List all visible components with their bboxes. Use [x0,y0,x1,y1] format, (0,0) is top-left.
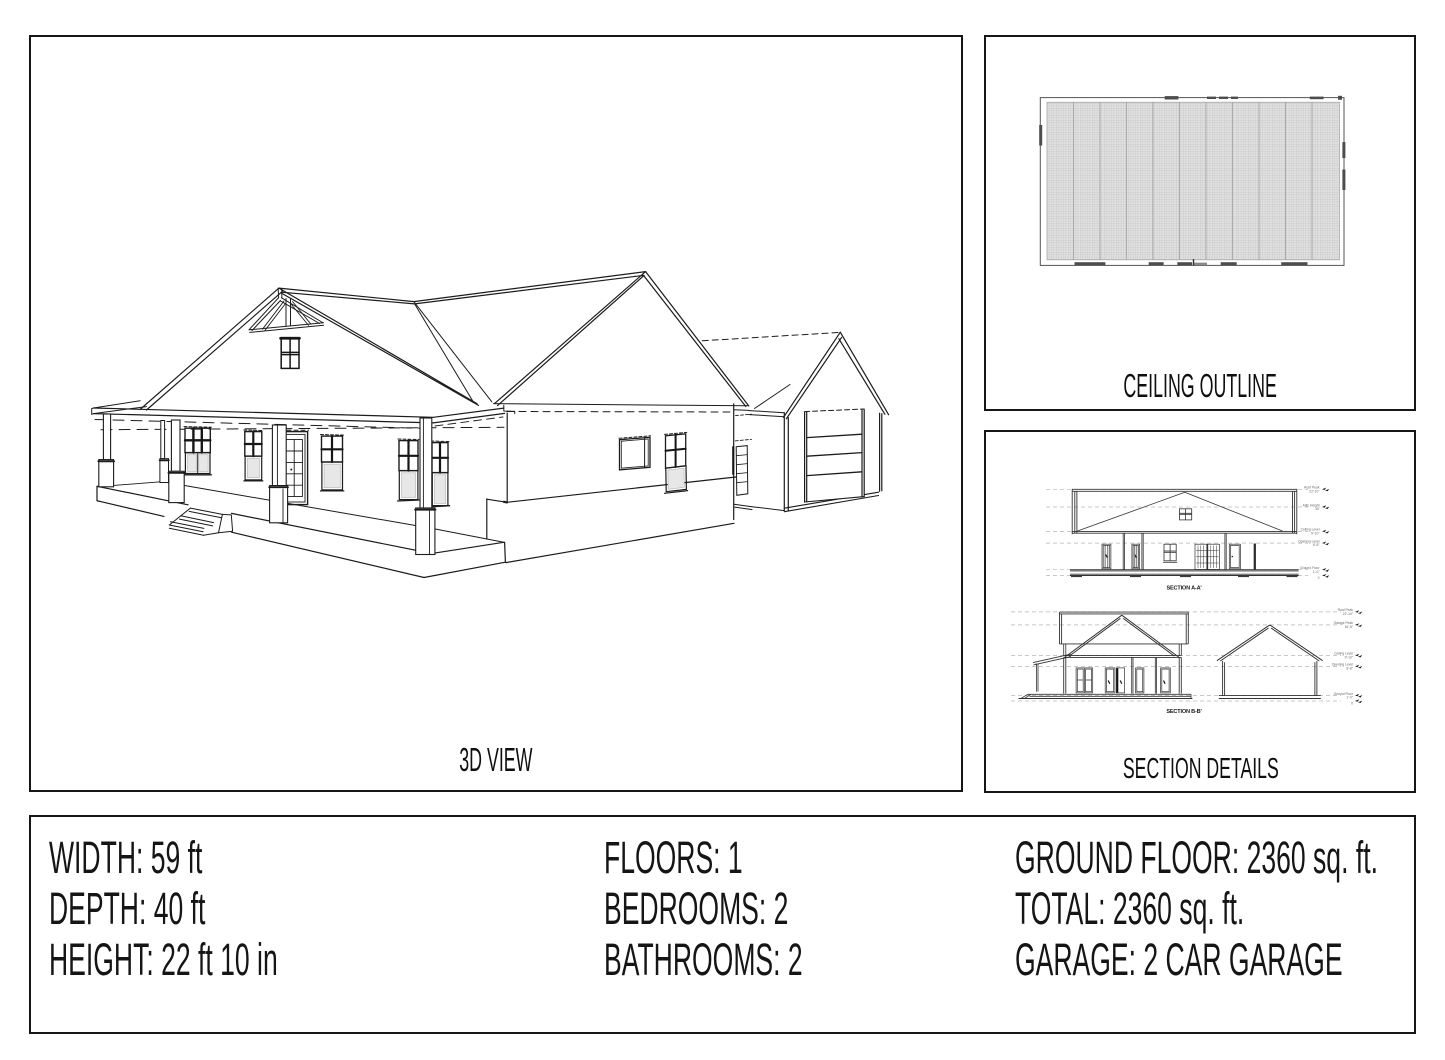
svg-text:16': 16' [1315,507,1320,511]
svg-text:SECTION B-B': SECTION B-B' [1166,709,1202,715]
svg-text:0: 0 [1351,702,1353,706]
svg-text:6'-8": 6'-8" [1313,543,1320,547]
svg-text:9'-10": 9'-10" [1345,656,1354,660]
svg-text:22'-10": 22'-10" [1343,612,1354,616]
svg-text:16'-8": 16'-8" [1345,625,1354,629]
svg-text:6'-8": 6'-8" [1346,667,1353,671]
svg-text:SECTION A-A': SECTION A-A' [1166,586,1202,592]
svg-text:22'-10": 22'-10" [1309,489,1320,493]
svg-text:1'-0": 1'-0" [1346,696,1353,700]
svg-text:9'-10": 9'-10" [1311,532,1320,536]
svg-text:1'-0": 1'-0" [1313,570,1320,574]
svg-text:0: 0 [1318,576,1320,580]
